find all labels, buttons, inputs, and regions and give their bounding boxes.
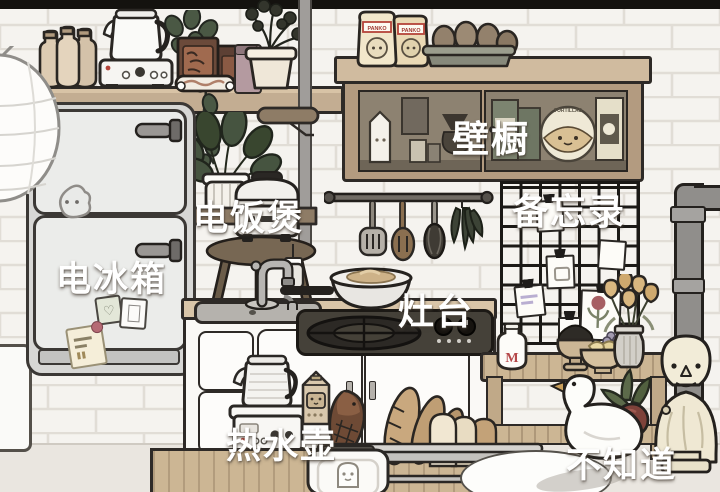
svg-text:PANKO: PANKO	[401, 28, 420, 34]
pipe-collar	[672, 278, 705, 294]
label-kettle: 热水壶	[226, 429, 337, 464]
label-wall-cabinet: 壁橱	[452, 121, 530, 158]
kitchen-scene: TORTILLAS PANKO PANKO	[0, 0, 720, 492]
label-memo-board: 备忘录	[512, 194, 626, 230]
label-stove: 灶台	[398, 294, 474, 330]
spatula[interactable]	[360, 201, 386, 255]
milk-photo-magnet[interactable]	[119, 297, 148, 330]
heart-icon: ♡	[102, 303, 115, 317]
fridge-base	[38, 349, 180, 365]
slotted-spoon[interactable]	[392, 201, 414, 260]
binder-clip-icon	[522, 278, 535, 288]
carton-sketch	[127, 305, 140, 323]
memo-photo[interactable]	[545, 255, 575, 290]
label-refrigerator: 电冰箱	[56, 262, 167, 297]
toast-icon	[338, 463, 358, 487]
svg-text:TORTILLAS: TORTILLAS	[554, 108, 583, 114]
memo-note[interactable]	[597, 239, 627, 271]
pinned-note[interactable]	[65, 323, 108, 369]
egg-carton[interactable]	[420, 20, 520, 70]
drain-icon	[249, 310, 256, 315]
svg-text:PANKO: PANKO	[367, 26, 386, 32]
pipe-collar	[670, 206, 706, 223]
dried-herbs[interactable]	[451, 200, 482, 248]
cup-sketch	[554, 267, 570, 282]
whisk[interactable]	[425, 201, 445, 258]
label-rice-cooker: 电饭煲	[193, 201, 304, 236]
label-unknown: 不知道	[566, 448, 677, 483]
memo-note-lined[interactable]	[513, 284, 546, 319]
paper-lantern[interactable]	[0, 46, 66, 210]
svg-text:M: M	[505, 351, 518, 366]
milk-bottle-m[interactable]: M	[490, 320, 534, 372]
binder-clip-icon	[554, 249, 566, 258]
fridge-handle[interactable]	[134, 118, 184, 144]
